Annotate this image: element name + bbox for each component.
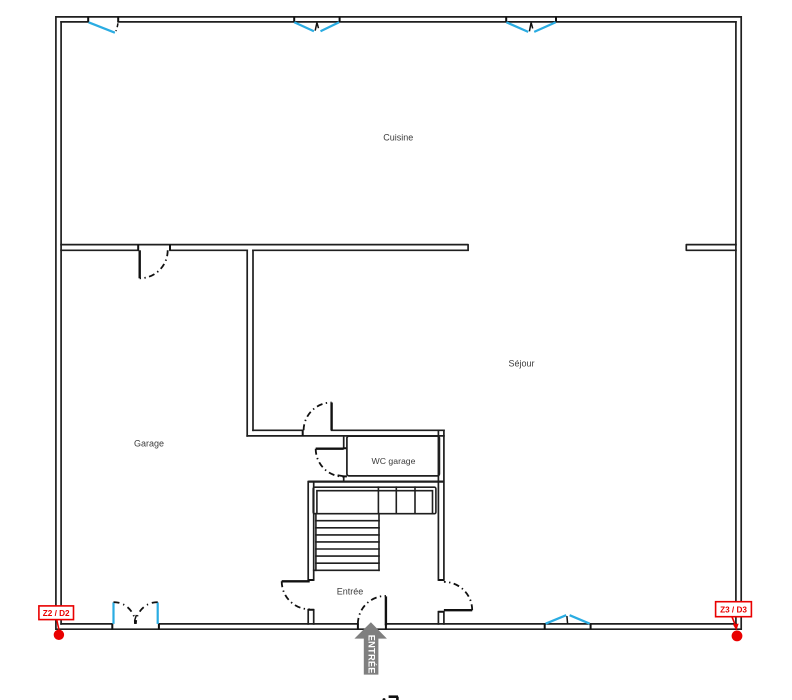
svg-text:Cuisine: Cuisine — [383, 132, 413, 142]
svg-text:WC garage: WC garage — [372, 456, 416, 466]
svg-text:Entrée: Entrée — [337, 586, 364, 596]
svg-text:Garage: Garage — [134, 438, 164, 448]
svg-text:Z3 / D3: Z3 / D3 — [720, 605, 747, 614]
svg-text:Z2 / D2: Z2 / D2 — [43, 609, 70, 618]
svg-text:ENTRÉE: ENTRÉE — [367, 635, 377, 674]
svg-text:Séjour: Séjour — [508, 358, 534, 368]
